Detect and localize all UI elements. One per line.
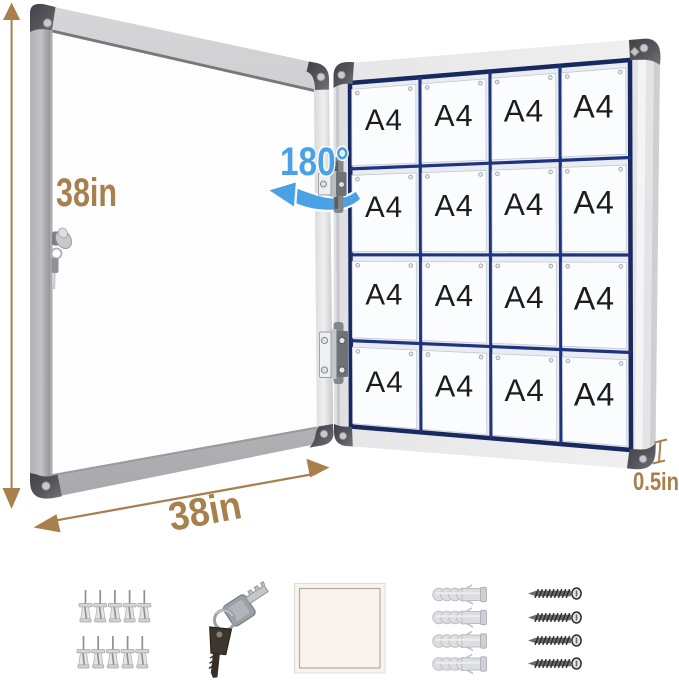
svg-text:A4: A4 [504,373,544,408]
svg-text:A4: A4 [435,189,474,223]
svg-text:A4: A4 [574,281,615,317]
svg-text:A4: A4 [365,279,403,312]
svg-text:A4: A4 [365,104,403,137]
svg-text:A4: A4 [366,366,404,399]
svg-text:A4: A4 [574,377,615,413]
svg-text:A4: A4 [365,191,403,224]
svg-text:38in: 38in [56,171,117,215]
svg-text:A4: A4 [504,280,544,315]
svg-text:A4: A4 [504,94,544,129]
svg-text:A4: A4 [573,89,614,125]
svg-text:180°: 180° [280,140,349,184]
svg-text:A4: A4 [434,99,473,133]
svg-text:A4: A4 [435,279,474,313]
svg-text:A4: A4 [504,187,544,222]
svg-text:A4: A4 [573,185,614,221]
svg-text:0.5in: 0.5in [633,468,679,496]
svg-text:A4: A4 [435,369,474,403]
